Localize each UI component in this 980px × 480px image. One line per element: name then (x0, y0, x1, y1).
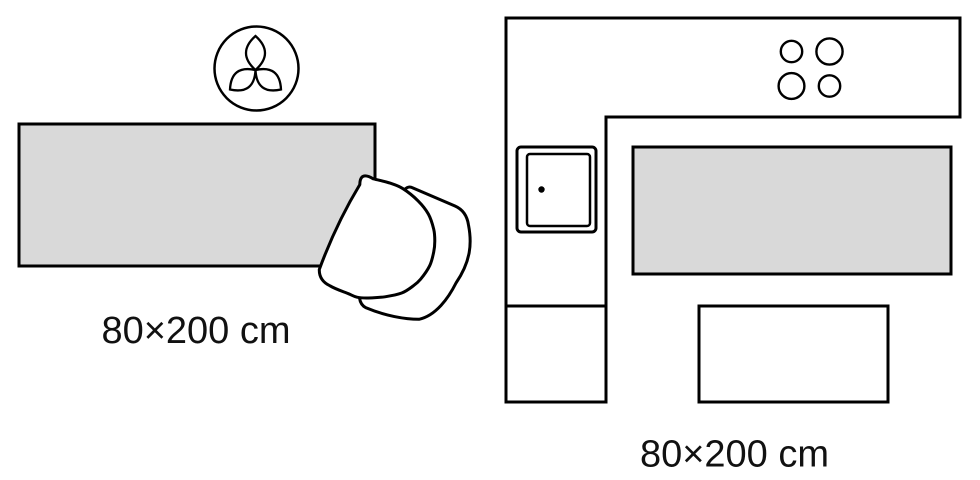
svg-text:80×200 cm: 80×200 cm (101, 310, 290, 352)
svg-text:80×200 cm: 80×200 cm (640, 434, 829, 476)
